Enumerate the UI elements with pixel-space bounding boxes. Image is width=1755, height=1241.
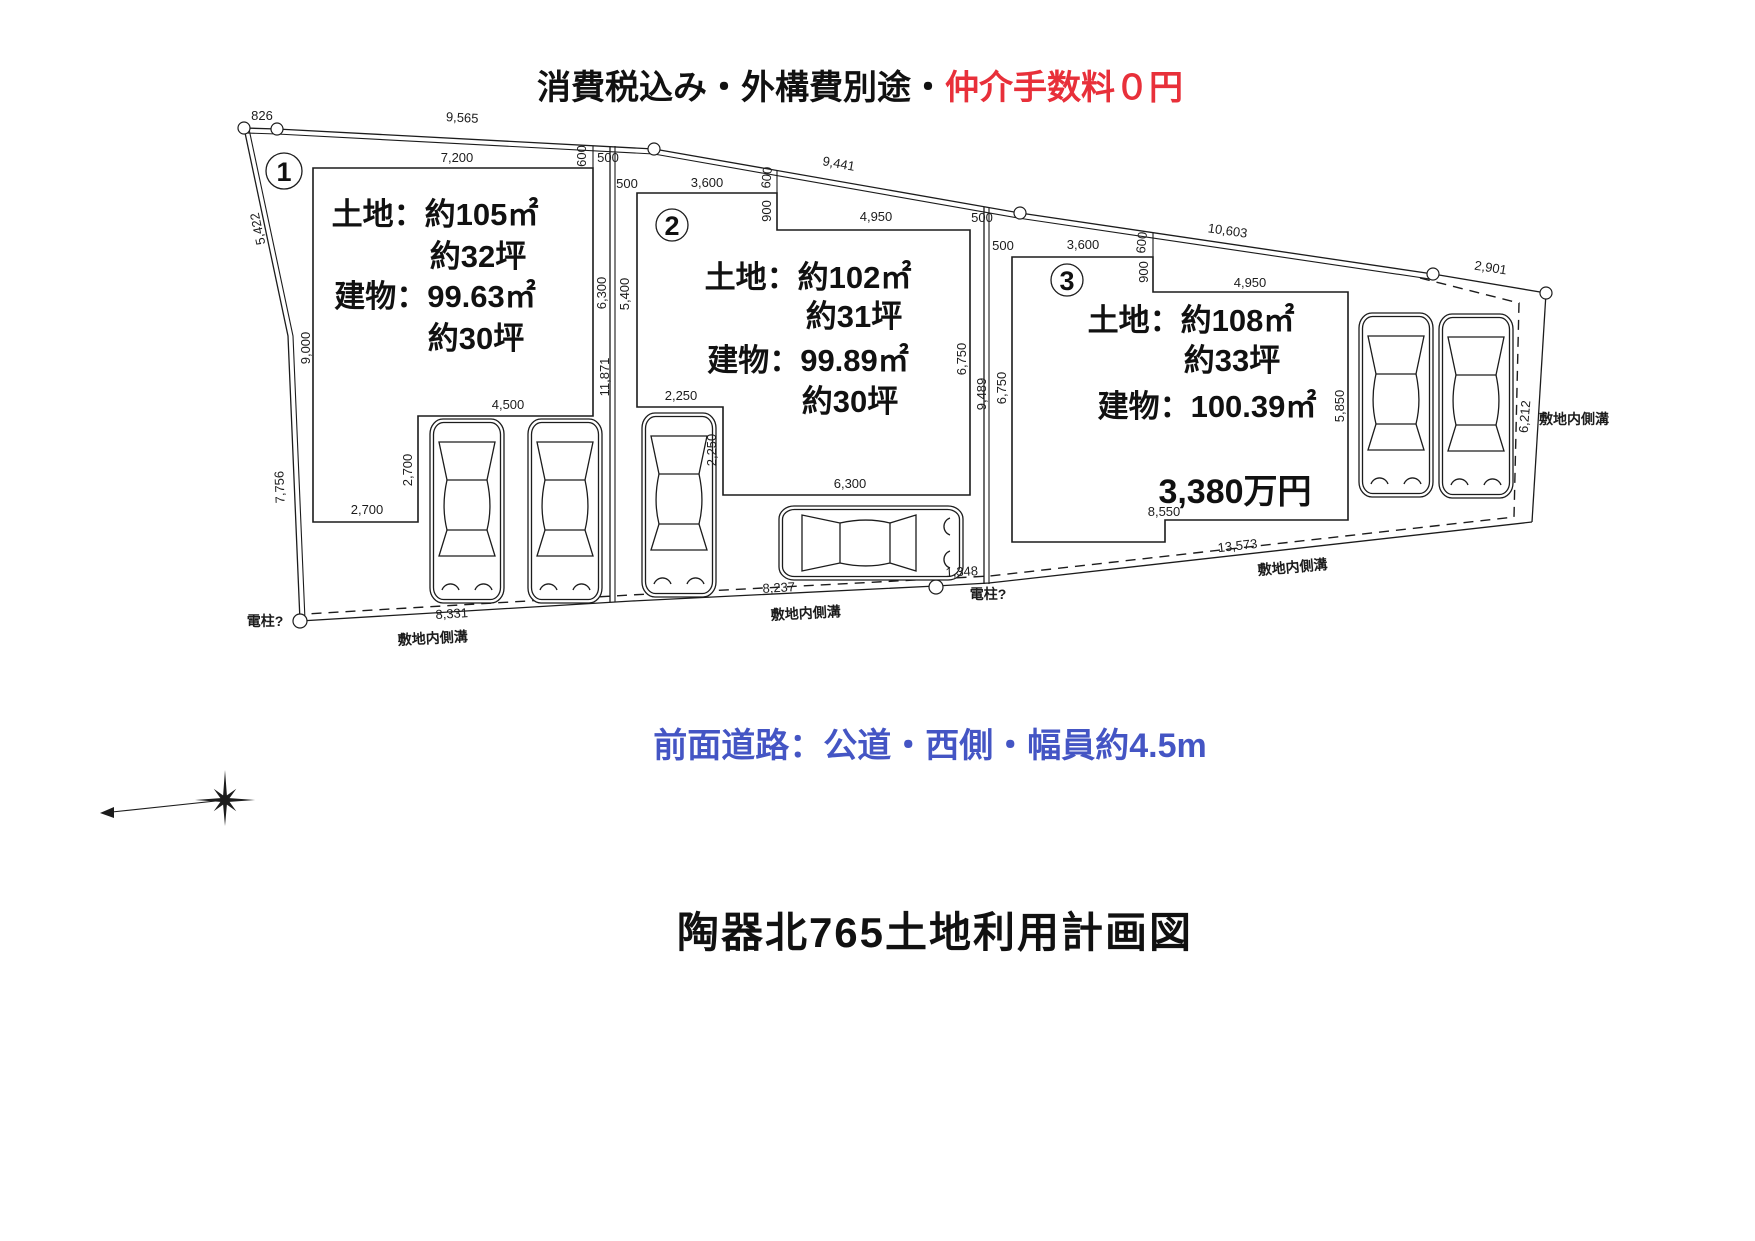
compass-rose bbox=[100, 770, 255, 826]
dim-600-b12: 600 bbox=[574, 145, 589, 167]
dim-3600-p2: 3,600 bbox=[691, 175, 724, 190]
tax-note-red-part: 仲介手数料０円 bbox=[945, 69, 1183, 107]
dim-500-b12b: 500 bbox=[616, 176, 638, 191]
plot-1-land-tsubo: 約32坪 bbox=[430, 239, 526, 274]
site-plan-drawing: 1 2 3 土地：約105㎡ 約32坪 建物：99.63㎡ 約30坪 土地：約1… bbox=[0, 0, 1755, 1241]
dim-9000: 9,000 bbox=[298, 332, 313, 365]
plot-1-building-tsubo: 約30坪 bbox=[428, 321, 524, 356]
dim-500-b23a: 500 bbox=[971, 210, 993, 225]
car-plot1-right bbox=[528, 419, 602, 603]
car-plot3-left bbox=[1359, 313, 1433, 497]
dim-900-p2: 900 bbox=[759, 200, 774, 222]
dim-2700-h: 2,700 bbox=[351, 502, 384, 517]
dim-826: 826 bbox=[251, 108, 273, 123]
dim-9565: 9,565 bbox=[446, 109, 479, 126]
dim-4950-p2: 4,950 bbox=[860, 209, 893, 224]
dim-5400: 5,400 bbox=[617, 278, 632, 311]
gutter-label-far-right: 敷地内側溝 bbox=[1539, 411, 1609, 427]
dim-2700-v: 2,700 bbox=[400, 454, 415, 487]
car-plot1-left bbox=[430, 419, 504, 603]
dim-500-b12a: 500 bbox=[597, 150, 619, 165]
gutter-label-mid: 敷地内側溝 bbox=[770, 603, 841, 623]
dim-6300-p2: 6,300 bbox=[834, 476, 867, 491]
dim-8550: 8,550 bbox=[1148, 504, 1181, 519]
plot-2-building-area: 建物：99.89㎡ bbox=[707, 343, 909, 378]
dim-6750-p3: 6,750 bbox=[994, 372, 1009, 405]
dim-2901: 2,901 bbox=[1473, 258, 1507, 278]
dim-600-p2: 600 bbox=[758, 166, 775, 189]
land-use-plan-page: 1 2 3 土地：約105㎡ 約32坪 建物：99.63㎡ 約30坪 土地：約1… bbox=[0, 0, 1755, 1241]
dim-10603: 10,603 bbox=[1207, 220, 1248, 240]
dim-3600-p3: 3,600 bbox=[1067, 237, 1100, 252]
dim-8331: 8,331 bbox=[435, 605, 468, 622]
plot-2-building-tsubo: 約30坪 bbox=[802, 384, 898, 419]
dim-1348: 1,348 bbox=[945, 563, 978, 580]
plot-3-land-tsubo: 約33坪 bbox=[1184, 343, 1280, 378]
dim-13573: 13,573 bbox=[1217, 536, 1258, 555]
gutter-label-right: 敷地内側溝 bbox=[1257, 556, 1328, 578]
dim-11871: 11,871 bbox=[597, 358, 612, 397]
plot-1-building-area: 建物：99.63㎡ bbox=[334, 279, 536, 314]
plot-2-land-area: 土地：約102㎡ bbox=[705, 260, 912, 295]
dim-9489: 9,489 bbox=[974, 378, 989, 411]
dim-500-b23b: 500 bbox=[992, 238, 1014, 253]
dim-7756: 7,756 bbox=[271, 471, 287, 504]
plot-3-building-area: 建物：100.39㎡ bbox=[1098, 389, 1317, 424]
dim-4500: 4,500 bbox=[492, 397, 525, 412]
dim-6212: 6,212 bbox=[1516, 400, 1534, 434]
utility-pole-label-left: 電柱? bbox=[247, 613, 284, 629]
plot-number-1: 1 bbox=[266, 153, 302, 189]
plot-3-number-label: 3 bbox=[1059, 266, 1074, 296]
dim-5422: 5,422 bbox=[247, 211, 268, 246]
dim-8237: 8,237 bbox=[762, 579, 795, 596]
utility-pole-label-mid: 電柱? bbox=[970, 586, 1007, 602]
plot-3-land-area: 土地：約108㎡ bbox=[1088, 303, 1295, 338]
dim-2250-h: 2,250 bbox=[665, 388, 698, 403]
plot-3-price: 3,380万円 bbox=[1158, 473, 1311, 511]
plot-1-number-label: 1 bbox=[276, 157, 291, 187]
tax-note-black-part: 消費税込み・外構費別途・ bbox=[537, 68, 945, 107]
front-road-note: 前面道路：公道・西側・幅員約4.5m bbox=[653, 727, 1207, 765]
dim-6750-p2: 6,750 bbox=[954, 343, 969, 376]
tax-note-headline: 消費税込み・外構費別途・仲介手数料０円 bbox=[537, 68, 1183, 107]
dim-5850: 5,850 bbox=[1332, 390, 1347, 423]
gutter-label-left: 敷地内側溝 bbox=[397, 628, 468, 648]
car-plot3-right bbox=[1439, 314, 1513, 498]
plot-2-number-label: 2 bbox=[664, 211, 679, 241]
car-plot2-horizontal bbox=[779, 506, 963, 580]
dim-6300-p1: 6,300 bbox=[594, 277, 609, 310]
plot-1-land-area: 土地：約105㎡ bbox=[332, 197, 539, 232]
dim-2250-v: 2,250 bbox=[704, 434, 719, 467]
page-title: 陶器北765土地利用計画図 bbox=[677, 909, 1193, 956]
dim-600-p3: 600 bbox=[1133, 231, 1150, 254]
dim-7200: 7,200 bbox=[441, 150, 474, 165]
plot-2-land-tsubo: 約31坪 bbox=[806, 299, 902, 334]
dim-4950-p3: 4,950 bbox=[1234, 275, 1267, 290]
dim-900-p3: 900 bbox=[1136, 261, 1151, 283]
dim-9441: 9,441 bbox=[821, 153, 856, 173]
